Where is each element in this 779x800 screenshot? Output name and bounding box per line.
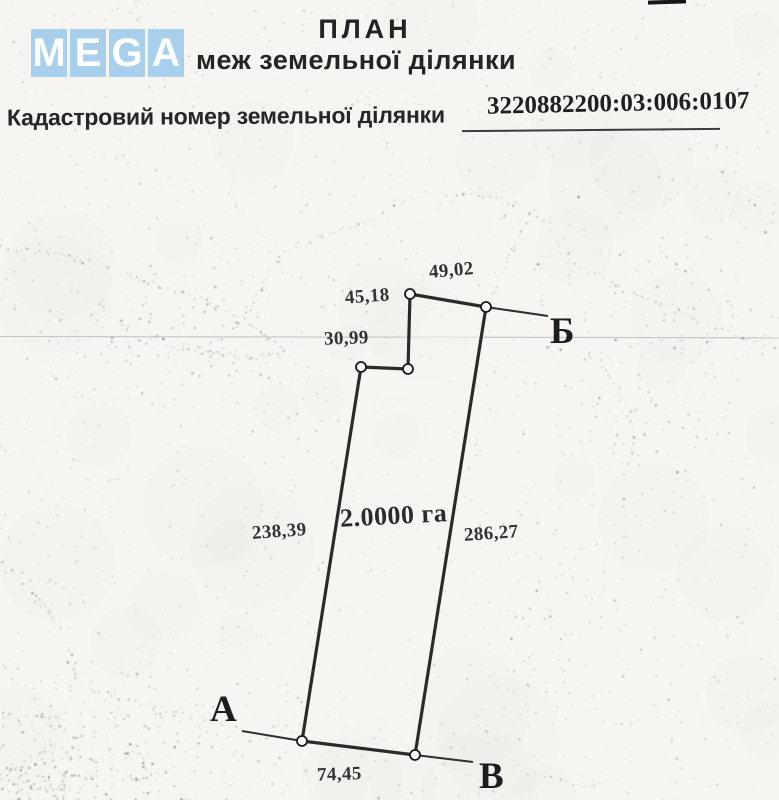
page-title: ПЛАН bbox=[250, 14, 480, 45]
dimension-label-left-side: 238,39 bbox=[251, 519, 307, 545]
logo-tile-a: A bbox=[148, 29, 184, 77]
dimension-label-bottom: 74,45 bbox=[317, 763, 362, 787]
dimension-label-top: 49,02 bbox=[428, 258, 474, 284]
cadastral-number-label: Кадастровий номер земельної ділянки bbox=[7, 101, 445, 131]
dimension-label-right-side: 286,27 bbox=[463, 521, 519, 547]
logo-tile-g: G bbox=[109, 29, 145, 77]
scanned-plan-page: M E G A ПЛАН меж земельної ділянки Кадас… bbox=[0, 0, 779, 800]
point-label-v: В bbox=[479, 758, 504, 795]
cadastral-number-value: 3220882200:03:006:0107 bbox=[487, 87, 750, 120]
point-label-b: Б bbox=[550, 313, 574, 350]
logo-tile-e: E bbox=[70, 29, 106, 77]
point-label-a: А bbox=[210, 691, 237, 728]
dimension-label-step-horizontal: 30,99 bbox=[324, 327, 369, 351]
logo-tile-m: M bbox=[31, 29, 67, 77]
mega-logo: M E G A bbox=[31, 29, 184, 77]
page-subtitle: меж земельної ділянки bbox=[196, 45, 516, 76]
dimension-label-step-vertical: 45,18 bbox=[344, 284, 390, 309]
area-label: 2.0000 га bbox=[339, 498, 448, 534]
